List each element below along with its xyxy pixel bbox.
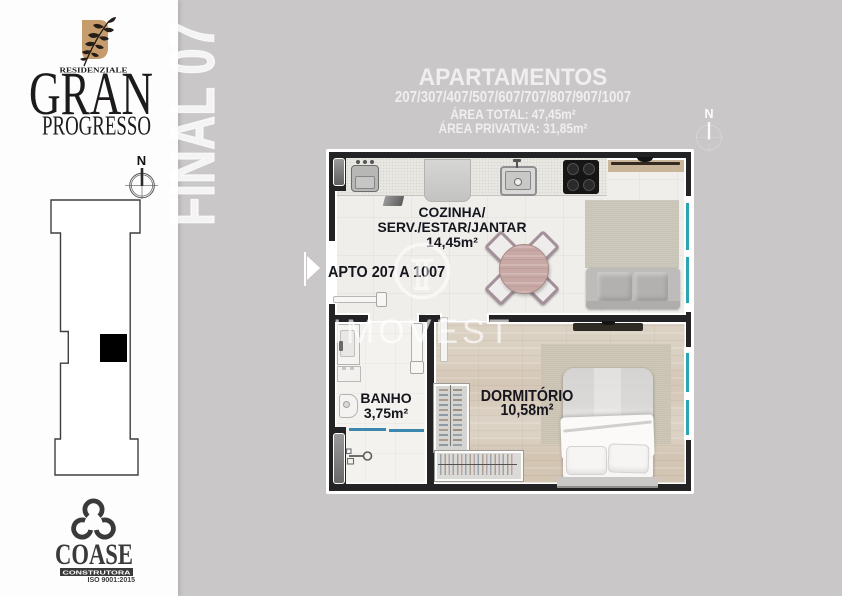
svg-text:IMOVEST: IMOVEST	[332, 313, 513, 351]
svg-text:N: N	[137, 153, 146, 168]
svg-text:COASE: COASE	[55, 538, 133, 570]
svg-text:CONSTRUTORA: CONSTRUTORA	[63, 570, 131, 576]
svg-text:N: N	[704, 107, 713, 121]
svg-text:GRAN: GRAN	[29, 68, 153, 120]
svg-text:PROGRESSO: PROGRESSO	[42, 115, 151, 141]
